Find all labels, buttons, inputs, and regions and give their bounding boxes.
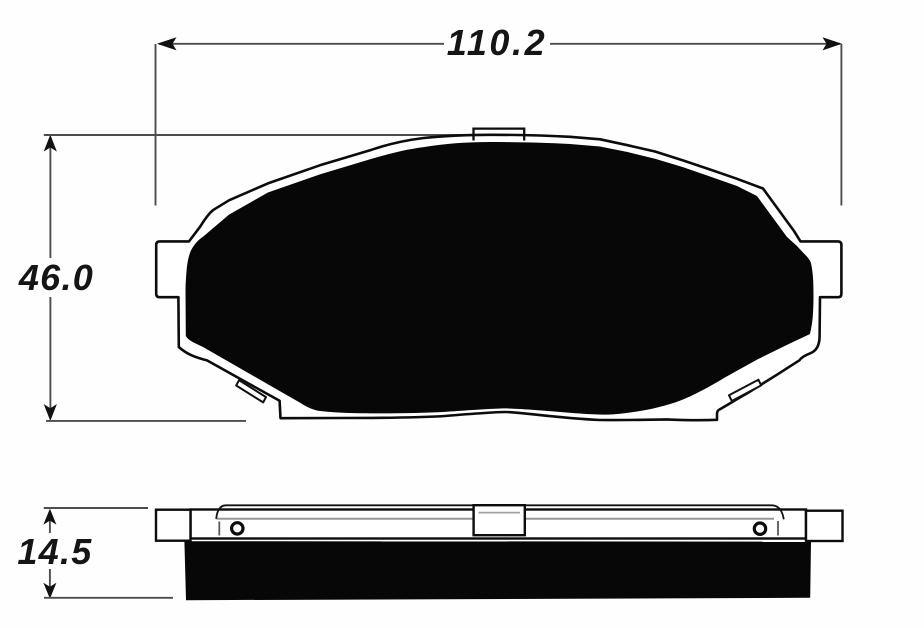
svg-text:46.0: 46.0: [18, 257, 94, 298]
svg-text:14.5: 14.5: [17, 531, 92, 572]
svg-text:110.2: 110.2: [447, 22, 547, 63]
